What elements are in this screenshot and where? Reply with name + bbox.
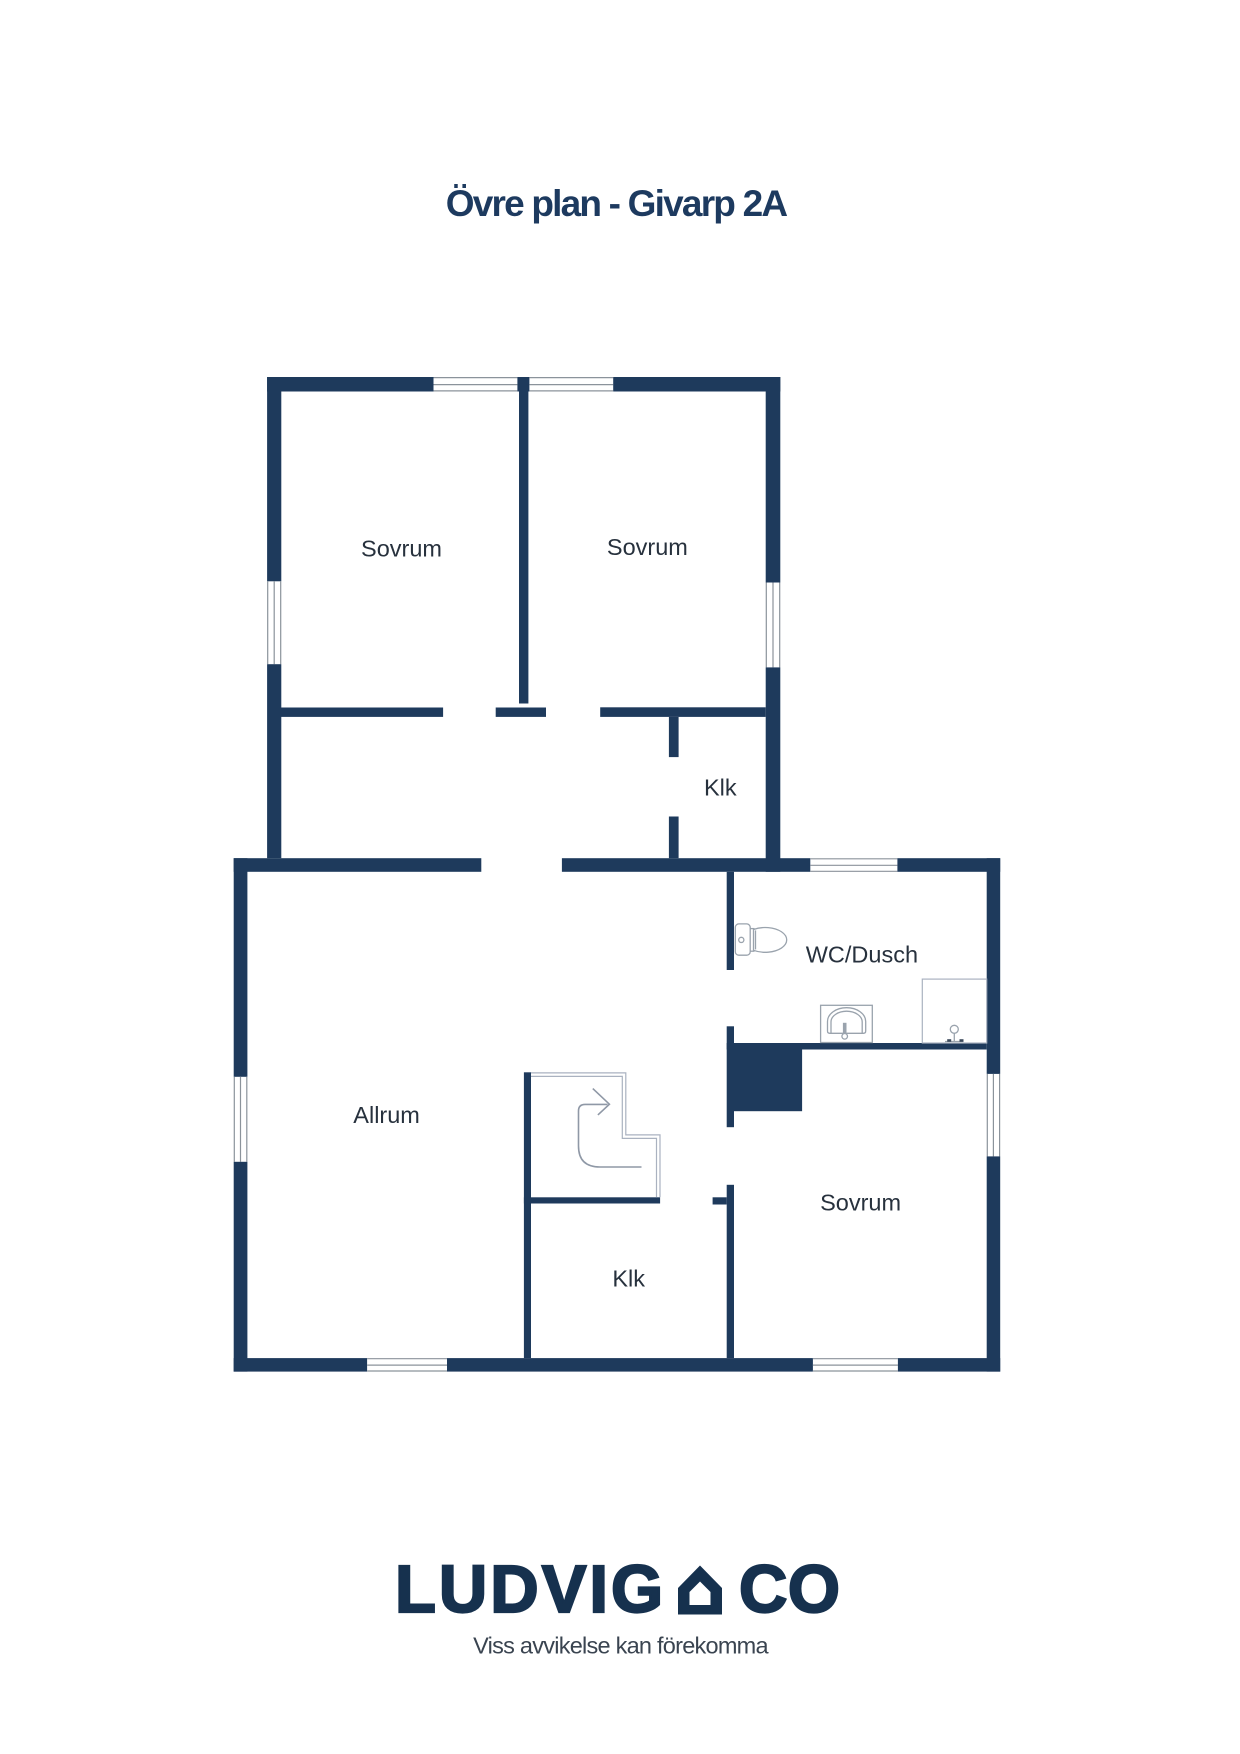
svg-text:WC/Dusch: WC/Dusch bbox=[806, 942, 918, 968]
svg-text:Sovrum: Sovrum bbox=[607, 534, 688, 560]
svg-text:Sovrum: Sovrum bbox=[820, 1190, 901, 1216]
svg-text:Sovrum: Sovrum bbox=[361, 536, 442, 562]
svg-text:Klk: Klk bbox=[704, 775, 737, 801]
svg-text:LUDVIG: LUDVIG bbox=[395, 1552, 666, 1627]
svg-text:CO: CO bbox=[739, 1552, 841, 1627]
svg-text:Klk: Klk bbox=[612, 1266, 645, 1292]
svg-text:Övre plan - Givarp 2A: Övre plan - Givarp 2A bbox=[446, 183, 788, 224]
svg-text:Viss avvikelse kan förekomma: Viss avvikelse kan förekomma bbox=[473, 1633, 769, 1659]
svg-text:Allrum: Allrum bbox=[353, 1102, 420, 1128]
